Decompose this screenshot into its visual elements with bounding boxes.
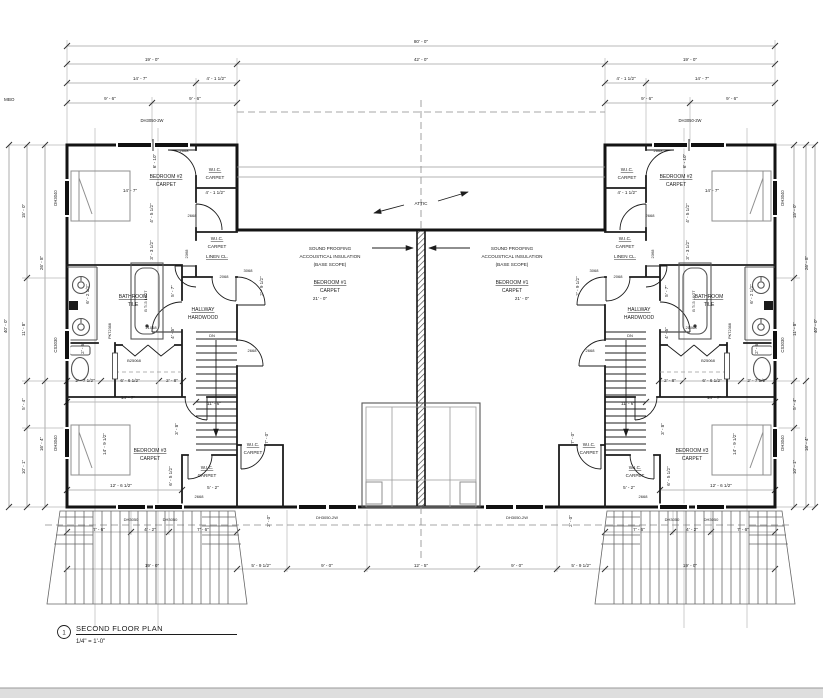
annotation-label: DH3040 [53,190,58,206]
annotation-label: 6' - 2 1/2" [85,284,90,304]
annotation-label: 11' - 8" [792,322,797,336]
annotation-label: CARPET [320,288,340,294]
annotation-label: 5' - 4" [21,398,26,410]
annotation-label: 2668 [654,148,664,153]
annotation-label: W.I.C. [583,442,596,447]
annotation-label: 10' - 1" [792,460,797,475]
annotation-label: HARDWOOD [188,315,219,321]
annotation-label: B T/-5 L&GT [692,290,696,312]
annotation-label: 21' - 0" [313,296,328,301]
annotation-label: CARPET [626,473,645,478]
annotation-label: CARPET [682,456,702,462]
annotation-label: 12' - 6 1/2" [710,483,732,488]
annotation-label: ACCOUSTICAL INSULATION [299,254,360,259]
annotation-label: 14' - 7" [695,76,710,81]
annotation-label: 26' - 8" [804,256,809,271]
annotation-label: 16' - 4" [804,437,809,452]
annotation-label: 4' - 2" [686,527,698,532]
annotation-label: (BASE SCOPE) [496,262,529,267]
annotation-label: DH3050-2W [140,118,163,123]
annotation-label: 9' - 6" [104,96,116,101]
annotation-label: DH3050 [665,517,680,522]
annotation-label: 4' - 1 1/2" [616,76,636,81]
annotation-label: 6' - 2 1/2" [749,284,754,304]
annotation-label: SOUND PROOFING [309,246,352,251]
annotation-label: DH3040 [780,435,785,451]
detail-number: 1 [62,631,66,637]
annotation-label: 2' - 6" [80,342,85,354]
annotation-label: CARPET [502,288,522,294]
annotation-label: 19' - 0" [145,563,160,568]
annotation-label: HALLWAY [628,307,652,313]
annotation-label: 7' - 0" [570,432,575,444]
annotation-label: 2' - 7 1/2" [747,378,767,383]
annotation-label: CARPET [618,175,637,180]
party-wall [417,100,425,560]
annotation-label: CARPET [206,175,225,180]
annotation-label: CS3030 [780,337,785,353]
annotation-label: 2668 [248,348,258,353]
annotation-label: 19' - 0" [683,57,698,62]
annotation-label: 6' - 5 1/2" [168,466,173,486]
annotation-label: 14' - 9 1/2" [732,433,737,455]
annotation-label: 2668 [646,213,656,218]
annotation-label: DH3050-2W [316,515,338,520]
annotation-label: 15' - 0" [21,204,26,219]
annotation-label: 2' - 0" [568,515,573,527]
annotation-label: 9' - 0" [511,563,523,568]
annotation-label: 2668 [586,348,596,353]
annotation-label: CARPET [208,244,227,249]
annotation-label: BEDROOM #3 [676,448,709,454]
drawing-scale: 1/4" = 1'-0" [76,639,105,645]
annotation-label: 9' - 0" [321,563,333,568]
annotation-label: 6' - 5 1/2" [666,466,671,486]
annotation-label: 5' - 9 1/2" [571,563,591,568]
labels-layer: MBO80' - 0"19' - 0"42' - 0"19' - 0"14' -… [3,39,818,568]
annotation-label: 7' - 6" [737,527,749,532]
annotation-label: CARPET [666,182,686,188]
annotation-label: W.I.C. [621,167,634,172]
annotation-label: 5' - 9 1/2" [251,563,271,568]
annotation-label: DH3050 [163,517,178,522]
annotation-label: 5' - 2" [207,485,219,490]
annotation-label: CARPET [198,473,217,478]
annotation-label: 3' - 3 1/2" [685,240,690,260]
title-block: 1 SECOND FLOOR PLAN 1/4" = 1'-0" [58,624,238,645]
annotation-label: 4' - 5" [170,327,175,339]
annotation-label: LINEN CL. [614,254,636,259]
page-title: SECOND FLOOR PLAN [76,624,163,633]
sheet-edge [0,688,823,698]
annotation-label: 6' - 6 1/2" [702,378,722,383]
annotation-label: 9' - 6" [726,96,738,101]
annotation-label: BEDROOM #1 [314,280,347,286]
annotation-label: 6' - 10" [152,154,157,169]
annotation-label: CARPET [580,450,599,455]
annotation-label: 11' - 6" [621,401,635,406]
annotation-label: 14' - 7" [133,76,148,81]
annotation-label: 19' - 0" [683,563,698,568]
annotation-label: 7' - 6" [93,527,105,532]
annotation-label: DH3050-2W [678,118,701,123]
annotation-label: 4' - 1 1/2" [205,190,225,195]
annotation-label: DH3040 [780,190,785,206]
annotation-label: 9' - 6" [641,96,653,101]
annotation-label: W.I.C. [211,236,224,241]
annotation-label: ACCOUSTICAL INSULATION [481,254,542,259]
annotation-label: DH3040 [53,435,58,451]
annotation-label: 21068 [685,325,697,330]
annotation-label: 4' - 5 1/2" [685,203,690,223]
annotation-label: 2668 [195,494,205,499]
annotation-label: 14' - 9 1/2" [102,433,107,455]
annotation-label: 2' - 9 1/2" [575,276,580,296]
annotation-label: 4' - 5 1/2" [149,203,154,223]
annotation-label: 21068 [145,325,157,330]
annotation-label: 3' - 3 1/2" [149,240,154,260]
annotation-label: 3068 [590,268,600,273]
annotation-label: W.I.C. [209,167,222,172]
annotation-label: 42' - 0" [414,57,429,62]
annotation-label: HALLWAY [192,307,216,313]
annotation-label: CARPET [244,450,263,455]
annotation-label: BATHROOM [119,294,148,300]
annotation-label: 2668 [180,148,190,153]
annotation-label: 14' - 7" [123,188,138,193]
annotation-label: 5' - 2" [623,485,635,490]
annotation-label: 2' - 6" [754,342,759,354]
annotation-label: BEDROOM #3 [134,448,167,454]
annotation-label: 5' - 7" [170,285,175,297]
annotation-label: 2' - 8" [664,378,676,383]
annotation-label: 3' - 8" [174,423,179,435]
annotation-label: CARPET [616,244,635,249]
annotation-label: 14' - 7" [707,395,722,400]
annotation-label: 14' - 7" [705,188,720,193]
annotation-label: 7' - 6" [197,527,209,532]
annotation-label: 19' - 0" [145,57,160,62]
annotation-label: 80' - 0" [414,39,429,44]
annotation-label: 40' - 0" [3,319,8,334]
annotation-label: 11' - 8" [21,322,26,336]
annotation-label: BEDROOM #2 [150,174,183,180]
annotation-label: 2368 [650,249,655,259]
annotation-label: 21' - 0" [515,296,530,301]
annotation-label: HARDWOOD [624,315,655,321]
annotation-label: CARPET [156,182,176,188]
annotation-label: 7' - 6" [633,527,645,532]
annotation-label: DH3050 [704,517,719,522]
annotation-label: DH3050-2W [506,515,528,520]
annotation-label: 6' - 6 1/2" [120,378,140,383]
annotation-label: 2' - 8" [166,378,178,383]
annotation-label: DN [627,333,633,338]
annotation-label: 5' - 4" [792,398,797,410]
annotation-label: 2668 [188,213,198,218]
drawing-sheet: MBO80' - 0"19' - 0"42' - 0"19' - 0"14' -… [0,0,823,698]
annotation-label: 2068 [220,274,230,279]
annotation-label: 12' - 6 1/2" [110,483,132,488]
annotation-label: LINEN CL. [206,254,228,259]
annotation-label: (BASE SCOPE) [314,262,347,267]
annotation-label: W.I.C. [619,236,632,241]
annotation-label: 12' - 5" [414,563,429,568]
annotation-label: 4' - 1 1/2" [206,76,226,81]
annotation-label: DN [209,333,215,338]
annotation-label: DH3050 [124,517,139,522]
annotation-label: SOUND PROOFING [491,246,534,251]
annotation-label: 3' - 8" [660,423,665,435]
annotation-label: 11' - 6" [207,401,221,406]
annotation-label: PKT2368 [108,323,112,339]
annotation-label: PKT2368 [728,323,732,339]
annotation-label: B25068 [127,358,142,363]
annotation-label: W.I.C. [629,465,642,470]
annotation-label: 40' - 0" [813,319,818,334]
annotation-label: B T/-5 L&GT [144,290,148,312]
annotation-label: 4' - 2" [144,527,156,532]
annotation-label: ATTIC [415,201,429,206]
annotation-label: 15' - 0" [792,204,797,219]
annotation-label: 2068 [614,274,624,279]
annotation-label: TILE [704,302,715,308]
annotation-label: W.I.C. [201,465,214,470]
annotation-label: 26' - 8" [39,256,44,271]
annotation-label: 7' - 0" [264,432,269,444]
annotation-label: CS3030 [53,337,58,353]
annotation-label: TILE [128,302,139,308]
unit-left [47,128,421,628]
annotation-label: 4' - 5" [664,327,669,339]
annotation-label: B25068 [701,358,716,363]
annotation-label: 2' - 7 1/2" [75,378,95,383]
annotation-label: 2' - 9 1/2" [259,276,264,296]
annotation-label: BEDROOM #1 [496,280,529,286]
annotation-label: 14' - 7" [121,395,136,400]
annotation-label: 5' - 7" [664,285,669,297]
annotation-label: 10' - 1" [21,460,26,475]
annotation-label: 4' - 1 1/2" [617,190,637,195]
annotation-label: BEDROOM #2 [660,174,693,180]
annotation-label: 2' - 0" [266,515,271,527]
annotation-label: MBO [4,97,15,102]
annotation-label: W.I.C. [247,442,260,447]
annotation-label: 2668 [639,494,649,499]
annotation-label: 16' - 4" [39,437,44,452]
annotation-label: 3068 [244,268,254,273]
annotation-label: 2368 [184,249,189,259]
floor-plan-svg: MBO80' - 0"19' - 0"42' - 0"19' - 0"14' -… [0,0,823,698]
annotation-label: 9' - 6" [189,96,201,101]
annotation-label: 6' - 10" [682,154,687,169]
annotation-label: BATHROOM [695,294,724,300]
annotation-label: CARPET [140,456,160,462]
